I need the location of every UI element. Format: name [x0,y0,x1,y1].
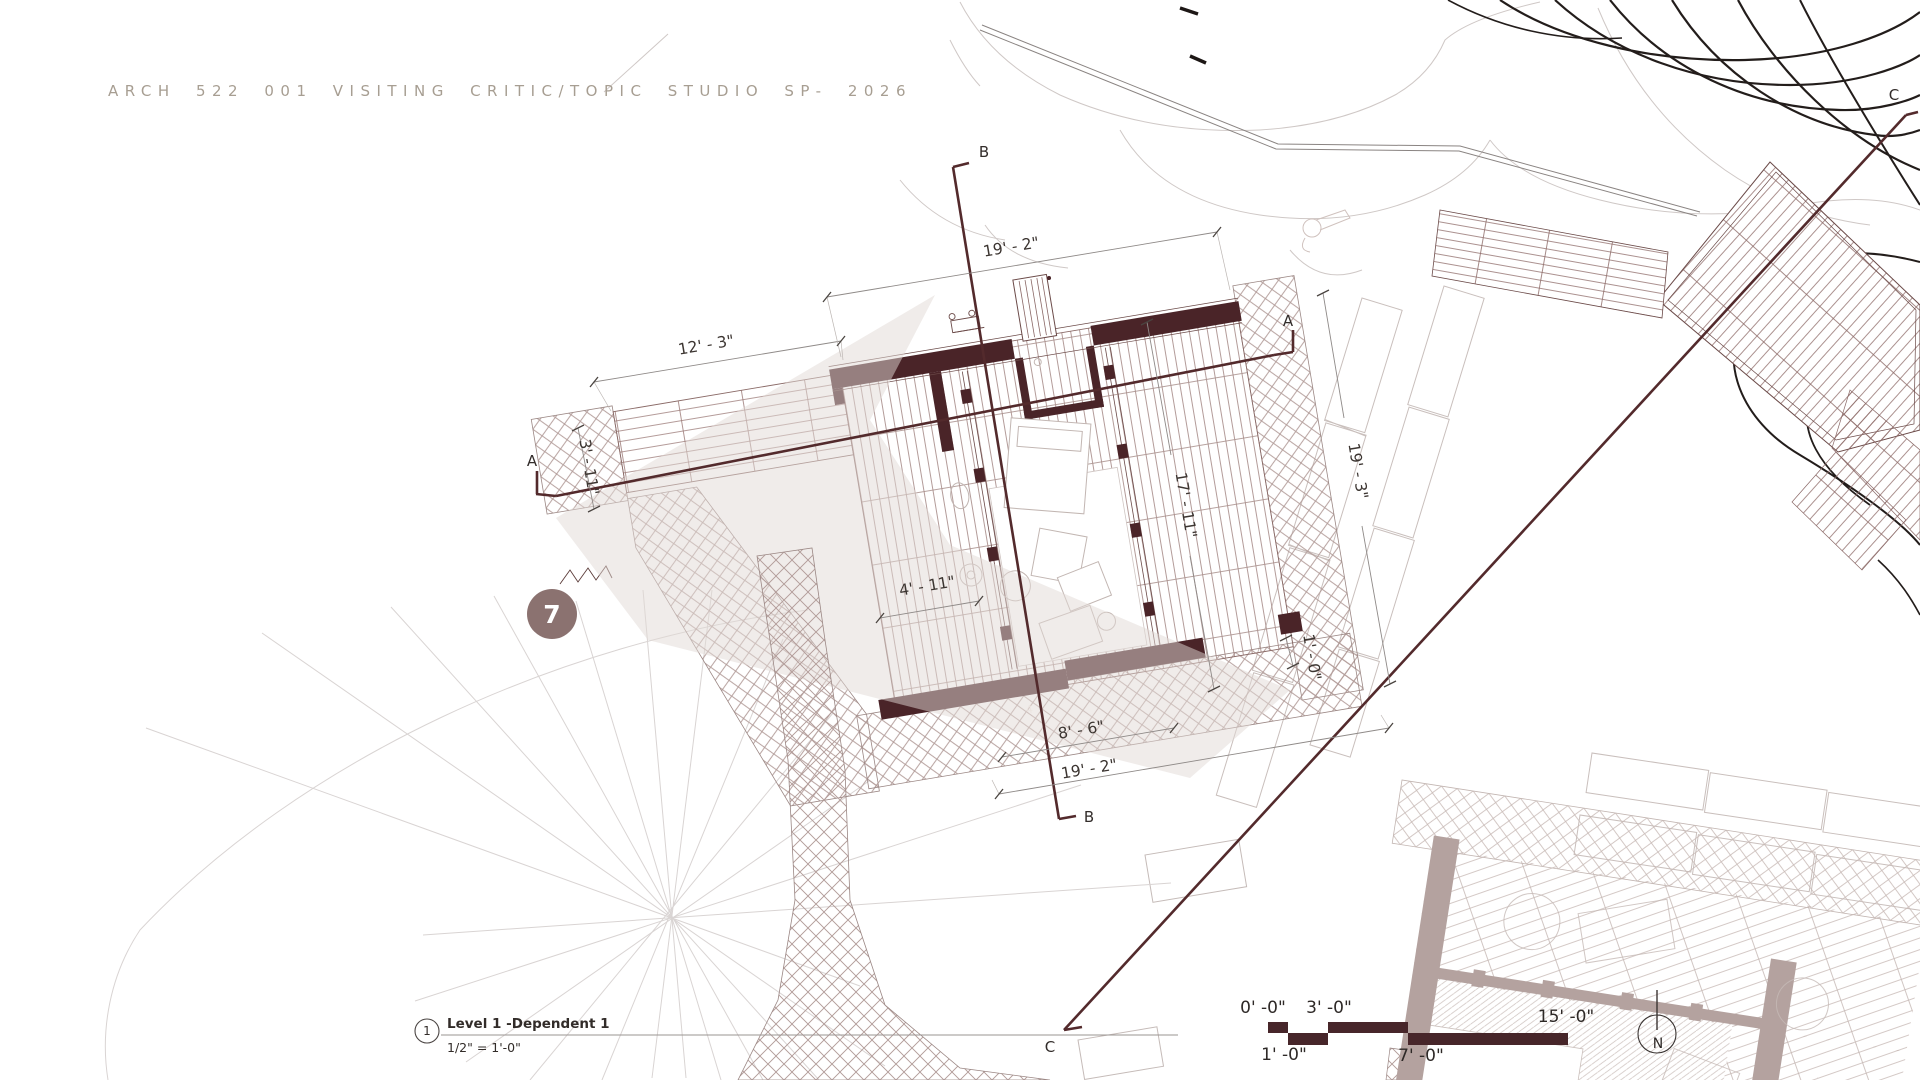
section-c-label-bottom[interactable]: C [1045,1038,1055,1056]
section-a-label-right[interactable]: A [1283,312,1294,330]
view-name: Level 1 -Dependent 1 [447,1016,610,1032]
callout-badge[interactable]: 7 [527,589,577,639]
scale-label-7: 7' -0" [1398,1046,1444,1066]
north-label: N [1653,1036,1663,1052]
site-benches [1078,839,1247,1079]
callout-number: 7 [543,600,560,629]
scale-label-15: 15' -0" [1538,1007,1594,1027]
view-scale: 1/2" = 1'-0" [447,1040,521,1055]
course-title: ARCH 522 001 VISITING CRITIC/TOPIC STUDI… [108,82,912,100]
drawing-canvas[interactable]: A A B B C C [0,0,1920,1080]
section-a-label-left[interactable]: A [527,452,538,470]
detail-number: 1 [423,1024,431,1038]
scale-label-0: 0' -0" [1240,998,1286,1018]
scale-label-1: 1' -0" [1261,1045,1307,1065]
section-b-label-bottom[interactable]: B [1084,808,1094,826]
scale-label-3: 3' -0" [1306,998,1352,1018]
figure-sketch [1302,210,1350,252]
section-b-label-top[interactable]: B [979,143,989,161]
section-c-label-top[interactable]: C [1889,86,1899,104]
dim-left-deck-width[interactable]: 12' - 3" [677,331,736,358]
